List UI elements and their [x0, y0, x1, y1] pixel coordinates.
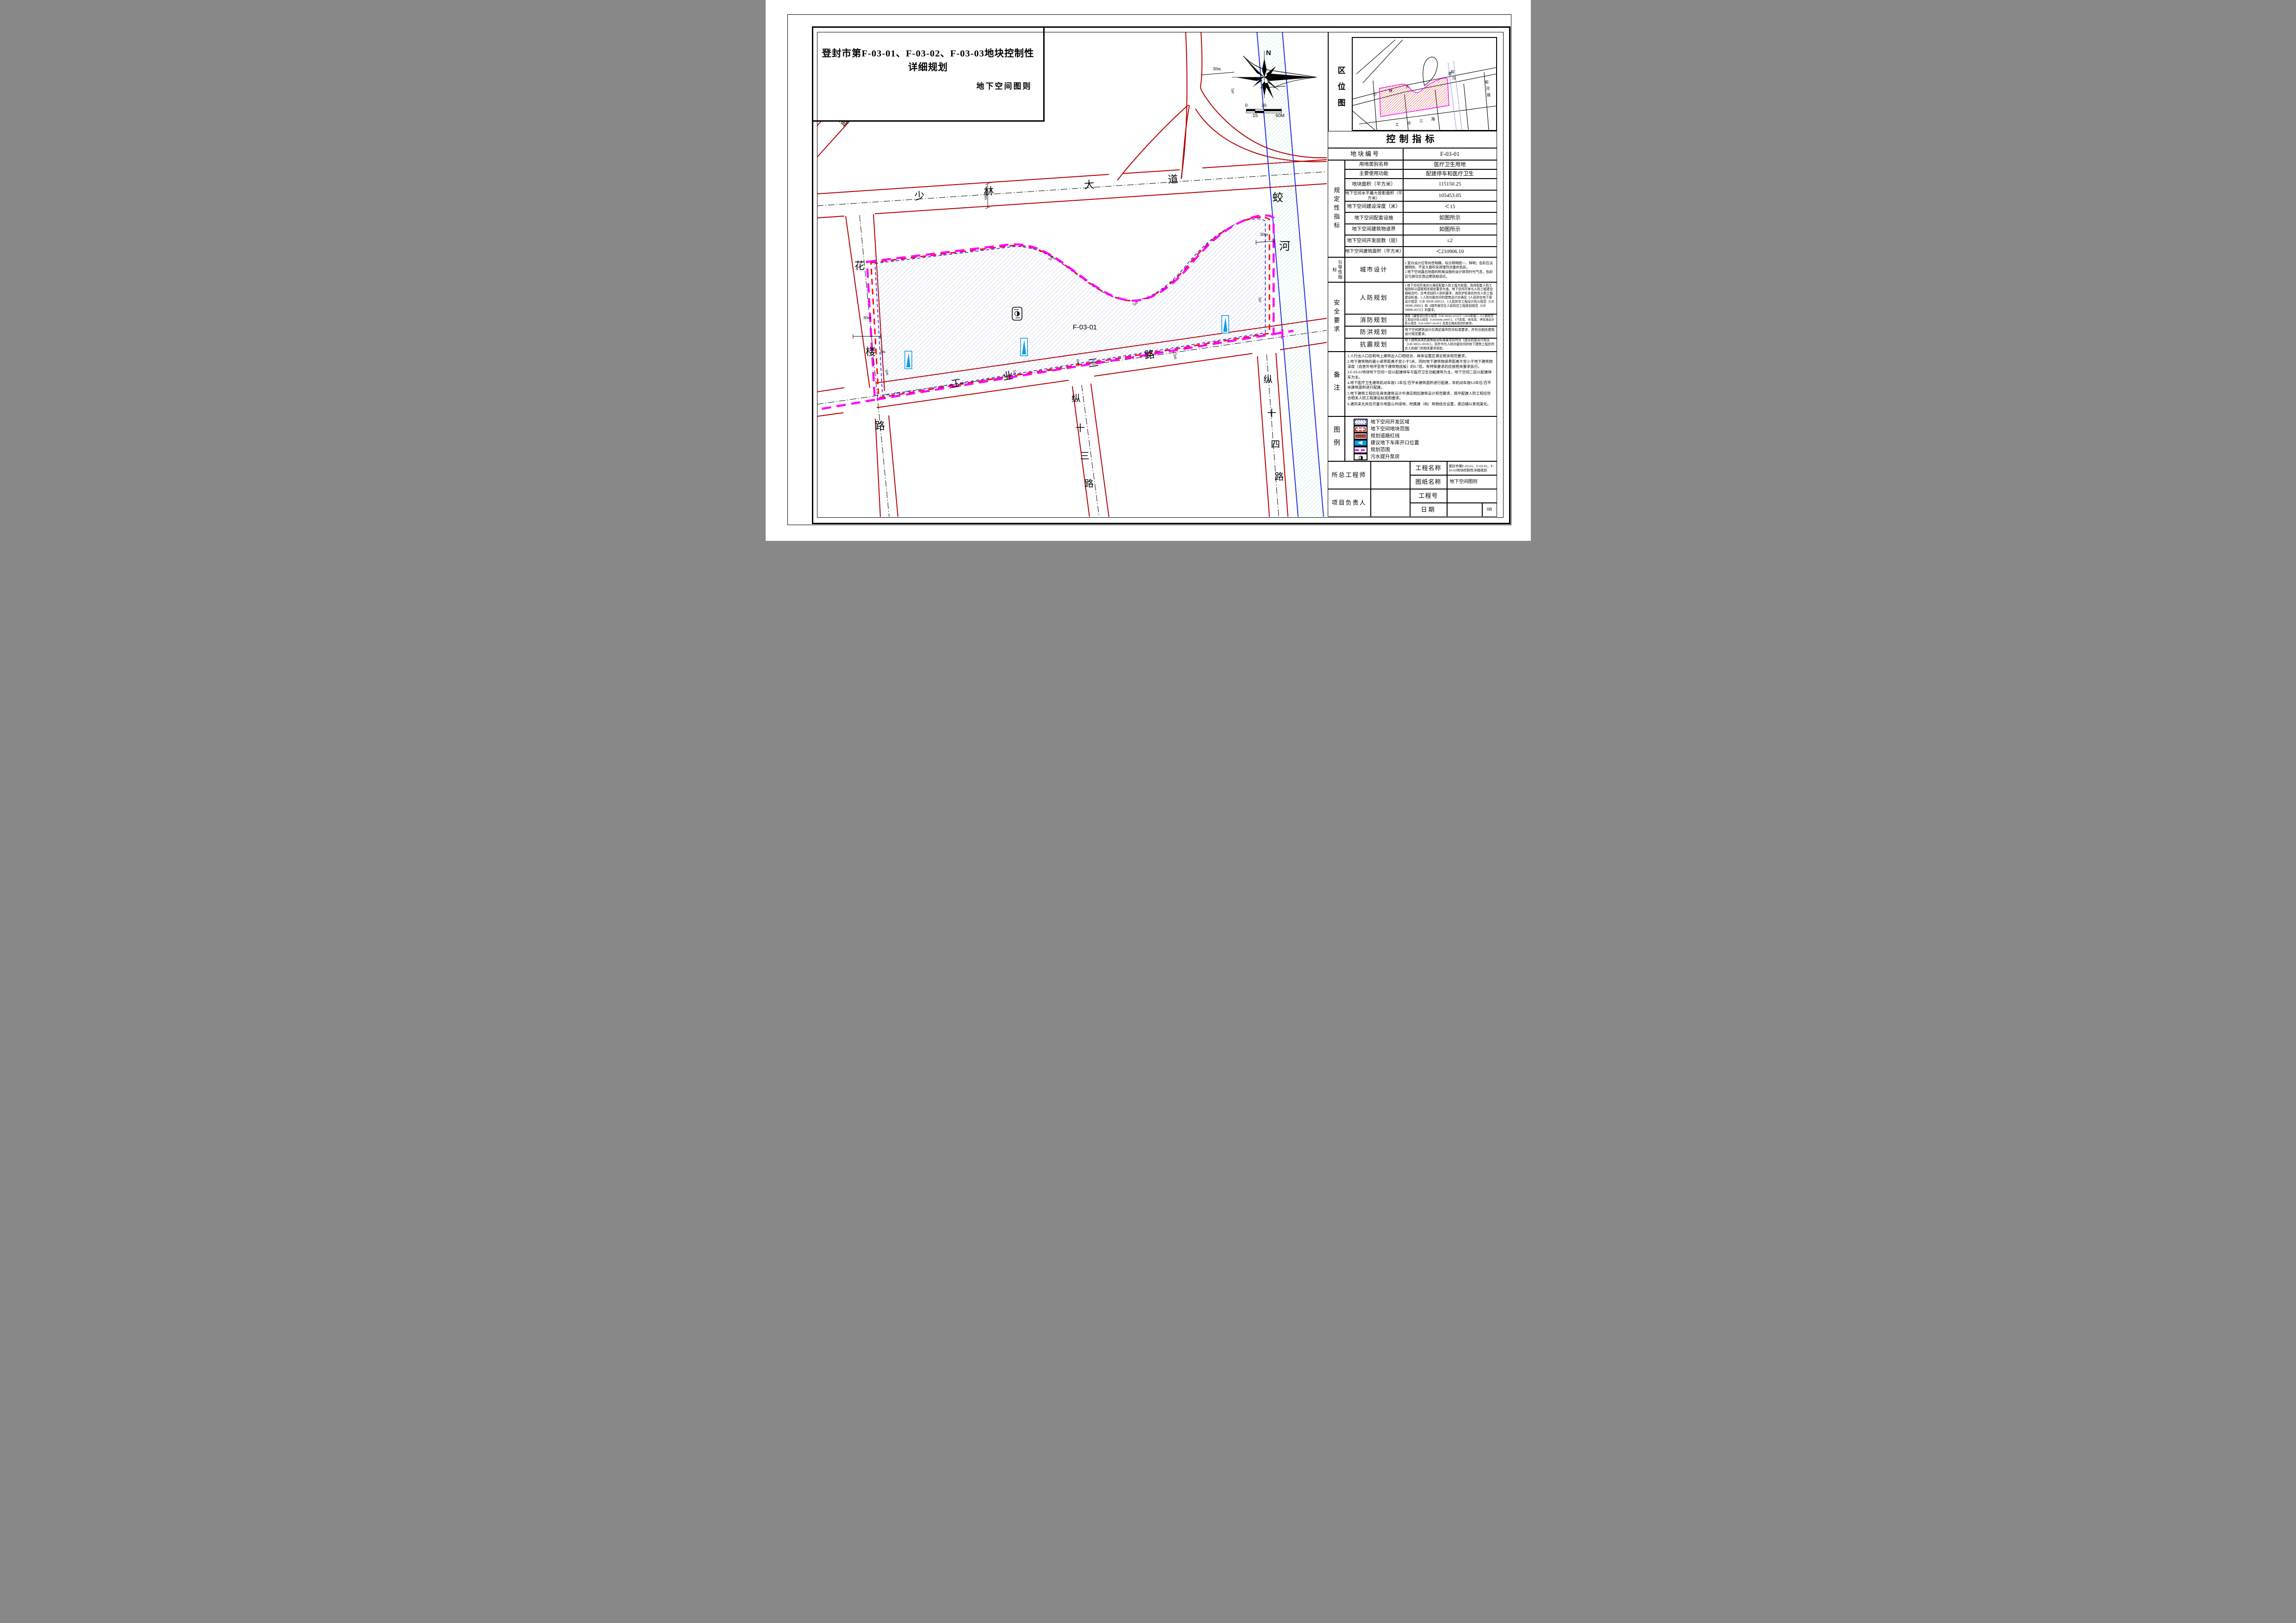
sheet-frame-inner — [817, 32, 1504, 518]
drawing-sheet: 盐洛高速少林大道花楼路工业三路纵十三路纵十四路蛟河F-03-0150m30m5m… — [766, 0, 1531, 541]
